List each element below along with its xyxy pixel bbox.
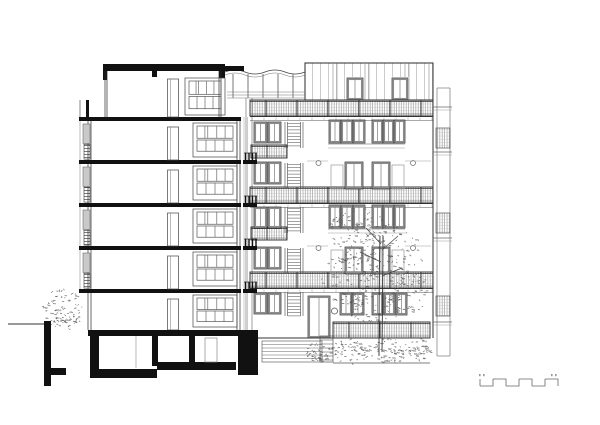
site-ground-and-wall: [8, 321, 66, 386]
building-section-view: [79, 64, 258, 378]
street-elevation-view: [225, 63, 452, 363]
graphic-scale-bar: [479, 374, 558, 386]
drawing-sheet: [0, 0, 600, 425]
architectural-drawing: [0, 0, 600, 425]
